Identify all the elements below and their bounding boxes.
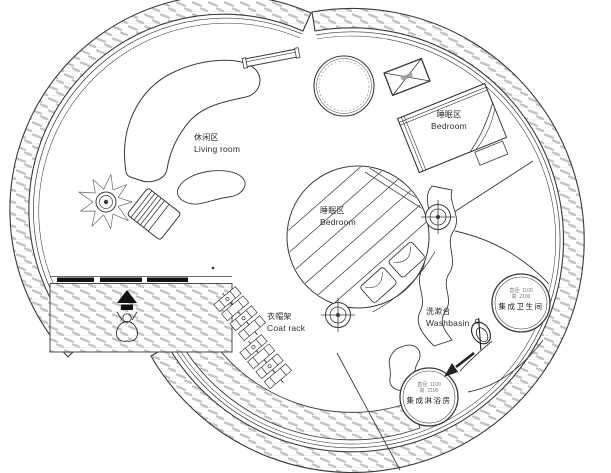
coffee-table: [177, 171, 245, 205]
living-room-label-zh: 休闲区: [194, 133, 240, 144]
coat-rack-label-en: Coat rack: [267, 323, 305, 334]
coat-rack-label-zh: 衣帽架: [267, 312, 305, 323]
shower-pod-name: 集成淋浴房: [389, 396, 469, 405]
direction-arrow: [444, 353, 474, 377]
partition-wall-upper: [448, 161, 533, 216]
reference-dot: [212, 267, 215, 270]
bathroom-pod-name: 集成卫生间: [481, 302, 561, 311]
door-threshold: [57, 278, 188, 283]
washbasin-label: 洗漱台 Washbasin: [426, 307, 470, 328]
entrance-porch: [50, 284, 232, 353]
floor-plan-drawing: [0, 0, 611, 473]
toilet-icon: [466, 317, 496, 350]
shower-pod-dim2: 高: 2100: [389, 388, 469, 394]
floor-plan: 休闲区 Living room 睡眠区 Bedroom 睡眠区 Bedroom …: [0, 0, 611, 473]
bathroom-pod-label: 直径: 1100 高: 2100 集成卫生间: [481, 288, 561, 311]
bathroom-pod-dim2: 高: 2100: [481, 294, 561, 300]
round-table: [314, 56, 374, 116]
bedroom-center-label-en: Bedroom: [320, 217, 356, 228]
washbasin-label-en: Washbasin: [426, 318, 470, 329]
bedroom-center-label-zh: 睡眠区: [320, 206, 356, 217]
living-room-label-en: Living room: [194, 144, 240, 155]
tv-console: [242, 48, 300, 69]
lounge-chair: [127, 188, 181, 241]
plant: [79, 174, 132, 228]
bedroom-loft-label-en: Bedroom: [414, 121, 484, 132]
bedroom-loft-label: 睡眠区 Bedroom: [414, 110, 484, 131]
curved-sofa: [125, 60, 260, 181]
bedroom-center-label: 睡眠区 Bedroom: [320, 206, 356, 227]
living-room-label: 休闲区 Living room: [194, 133, 240, 154]
washbasin-label-zh: 洗漱台: [426, 307, 470, 318]
coat-rack-label: 衣帽架 Coat rack: [267, 312, 305, 333]
ac-unit: [384, 59, 430, 96]
bedroom-loft-label-zh: 睡眠区: [414, 110, 484, 121]
shower-pod-label: 直径: 1100 高: 2100 集成淋浴房: [389, 382, 469, 405]
bed: [398, 84, 513, 188]
